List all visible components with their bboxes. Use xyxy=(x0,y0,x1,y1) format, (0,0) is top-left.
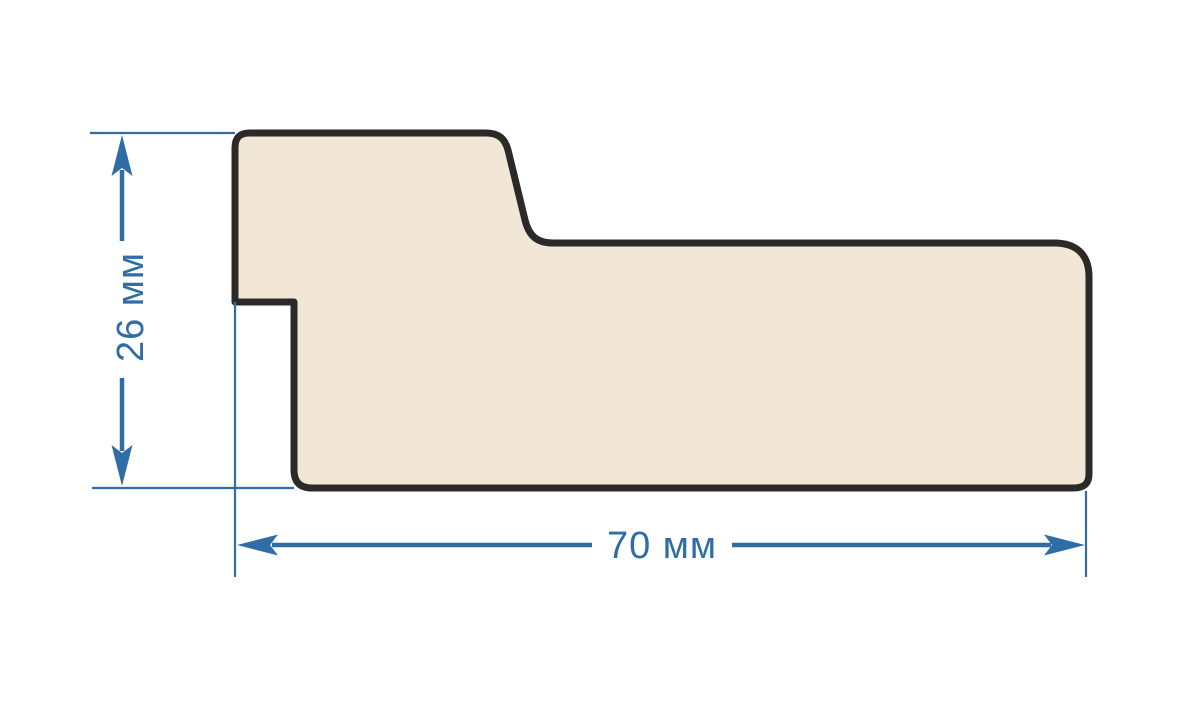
profile-cross-section xyxy=(235,133,1089,488)
arrow-left-icon xyxy=(237,535,278,556)
drawing-canvas: 26 мм 70 мм xyxy=(0,0,1184,712)
height-dimension-label: 26 мм xyxy=(110,252,152,362)
height-dimension: 26 мм xyxy=(110,135,152,486)
profile-diagram: 26 мм 70 мм xyxy=(0,0,1184,712)
width-dimension-label: 70 мм xyxy=(607,525,717,567)
arrow-down-icon xyxy=(112,445,133,486)
width-dimension: 70 мм xyxy=(237,525,1085,567)
arrow-up-icon xyxy=(112,135,133,176)
